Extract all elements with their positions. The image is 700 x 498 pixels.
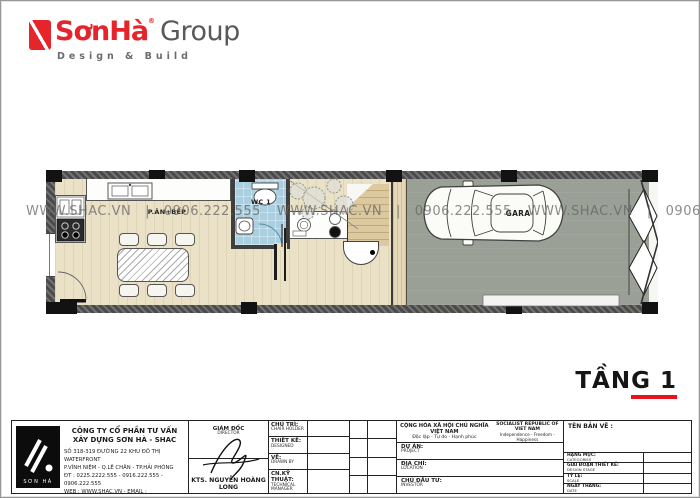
- motto-en-line1: SOCIALIST REPUBLIC OF VIET NAM: [492, 422, 563, 432]
- personnel-value: [308, 470, 349, 493]
- chair: [175, 284, 195, 297]
- meta-label-en: DESIGN STAGE: [567, 468, 643, 472]
- sonha-black-logo: SƠN HÀ: [16, 426, 60, 488]
- sonha-emblem-icon: [29, 20, 51, 50]
- wall-column: [642, 170, 658, 182]
- personnel-value: [308, 437, 349, 452]
- spare-row: [350, 476, 396, 493]
- spare-grid-cell: [350, 421, 397, 493]
- chair: [119, 233, 139, 246]
- personnel-label-en: DRAWN BY: [271, 461, 307, 466]
- project-label-en: LOCATION: [401, 467, 563, 472]
- motto-en-line2: Independence - Freedom - Happiness: [492, 432, 563, 442]
- motto-vn-line1: CỘNG HÒA XÃ HỘI CHỦ NGHĨA VIỆT NAM: [397, 423, 492, 435]
- company-cell: SƠN HÀ CÔNG TY CỔ PHẦN TƯ VẤN XÂY DỰNG S…: [12, 421, 189, 493]
- watermark-text: WWW.SHAC.VN | 0906.222.555: [528, 204, 699, 221]
- drawing-sheet: SơnHà ® Group Design & Build: [0, 0, 700, 498]
- personnel-label-en: TECHNICAL MANAGER: [271, 484, 307, 493]
- wall-column: [239, 170, 255, 182]
- personnel-label-en: DESIGNED: [271, 445, 307, 450]
- floor-title-text: TẦNG 1: [575, 368, 677, 394]
- wall-bottom: [46, 305, 658, 313]
- door-leaf: [274, 244, 277, 280]
- drawing-title-label: TÊN BẢN VẼ :: [568, 424, 691, 431]
- meta-label-en: CATEGORIES: [567, 458, 643, 462]
- spare-row: [350, 421, 396, 439]
- drawing-meta-row: NGÀY THÁNG: DATE: [564, 484, 691, 493]
- company-web: WEB : WWW.SHAC.VN - EMAIL : SONHA@SHAC.V…: [64, 489, 185, 498]
- meta-label-en: DATE: [567, 489, 643, 493]
- watermark-text: WWW.SHAC.VN | 0906.222.555: [26, 204, 261, 221]
- watermark-text: WWW.SHAC.VN | 0906.222.555: [277, 204, 512, 221]
- floor-plan: P.ĂN+BẾP WC 1 GARA: [46, 171, 658, 313]
- motto-vn-line2: Độc lập - Tự do - Hạnh phúc: [397, 435, 492, 440]
- drawing-meta-row: HẠNG MỤC: CATEGORIES: [564, 453, 691, 463]
- meta-value: [644, 463, 691, 472]
- spare-row: [350, 439, 396, 457]
- project-cell: CỘNG HÒA XÃ HỘI CHỦ NGHĨA VIỆT NAM Độc l…: [397, 421, 564, 493]
- personnel-value: [308, 454, 349, 469]
- watermark-row: WWW.SHAC.VN | 0906.222.555 WWW.SHAC.VN |…: [26, 204, 699, 221]
- meta-value: [644, 484, 691, 493]
- company-name-line2: XÂY DỰNG SƠN HÀ - SHAC: [64, 436, 185, 445]
- personnel-row: THIẾT KẾ: DESIGNED: [269, 437, 349, 453]
- floor-title-underline: [631, 395, 677, 399]
- front-bay: [649, 179, 658, 305]
- chair: [119, 284, 139, 297]
- wall-column: [46, 170, 62, 182]
- chair: [147, 233, 167, 246]
- brand-logo: SơnHà ® Group Design & Build: [29, 17, 259, 67]
- garage-floor: [407, 179, 649, 305]
- brand-name-primary: SơnHà: [55, 17, 148, 47]
- meta-value: [644, 453, 691, 462]
- drawing-meta-row: TỶ LỆ: SCALE: [564, 474, 691, 484]
- project-row: DỰ ÁN: PROJECT: [397, 443, 563, 460]
- personnel-row: CHỦ TRÌ: CHAIR HOLDER: [269, 421, 349, 437]
- drawing-name-cell: TÊN BẢN VẼ : HẠNG MỤC: CATEGORIES GIAI Đ…: [564, 421, 691, 493]
- dining-table: [117, 248, 189, 282]
- personnel-row: VẼ: DRAWN BY: [269, 454, 349, 470]
- company-phone: ĐT : 0225.2222.555 - 0916.222.555 - 0906…: [64, 473, 185, 489]
- wall-column: [241, 302, 257, 314]
- partition-wall: [284, 228, 286, 281]
- title-block: SƠN HÀ CÔNG TY CỔ PHẦN TƯ VẤN XÂY DỰNG S…: [11, 420, 692, 494]
- wall-column: [501, 170, 517, 182]
- company-address1: SỐ 318-319 ĐƯỜNG 22 KHU ĐÔ THỊ WATERFRON…: [64, 449, 185, 465]
- meta-value: [644, 474, 691, 483]
- window-left: [46, 233, 55, 277]
- kitchen-top-counter: [86, 179, 231, 201]
- personnel-label-en: CHAIR HOLDER: [271, 428, 307, 433]
- meta-label-en: SCALE: [567, 479, 643, 483]
- wall-column: [386, 170, 402, 182]
- personnel-cell: CHỦ TRÌ: CHAIR HOLDER THIẾT KẾ: DESIGNED…: [269, 421, 350, 493]
- plank-strip-floor: [391, 179, 407, 305]
- registered-mark: ®: [148, 17, 155, 25]
- sonha-logo-text: SƠN HÀ: [16, 479, 60, 485]
- signature: [197, 429, 261, 481]
- wall-column: [46, 302, 62, 314]
- wall-column: [506, 302, 522, 314]
- wall-column: [61, 302, 77, 314]
- project-label-en: PROJECT: [401, 450, 563, 455]
- chair: [147, 284, 167, 297]
- floor-title: TẦNG 1: [575, 368, 677, 399]
- stair-post: [370, 250, 375, 255]
- project-label-en: INVESTOR: [401, 484, 563, 489]
- drawing-meta-row: GIAI ĐOẠN THIẾT KẾ: DESIGN STAGE: [564, 463, 691, 473]
- national-motto: CỘNG HÒA XÃ HỘI CHỦ NGHĨA VIỆT NAM Độc l…: [397, 421, 563, 443]
- project-row: ĐỊA CHỈ: LOCATION: [397, 460, 563, 477]
- wall-top: [46, 171, 658, 179]
- company-address2: P.VĨNH NIỆM - Q.LÊ CHÂN - TP.HẢI PHÒNG: [64, 465, 185, 473]
- wall-column: [642, 302, 658, 314]
- brand-tagline: Design & Build: [57, 51, 259, 62]
- brand-name-secondary: Group: [160, 17, 240, 47]
- chair: [175, 233, 195, 246]
- personnel-value: [308, 421, 349, 436]
- project-row: CHỦ ĐẦU TƯ: INVESTOR: [397, 477, 563, 493]
- personnel-row: CN.KỸ THUẬT: TECHNICAL MANAGER: [269, 470, 349, 493]
- director-cell: GIÁM ĐỐC DIRECTOR KTS. NGUYỄN HOÀNG LONG: [189, 421, 269, 493]
- personnel-label-vn: CN.KỸ THUẬT:: [271, 471, 307, 484]
- spare-row: [350, 458, 396, 476]
